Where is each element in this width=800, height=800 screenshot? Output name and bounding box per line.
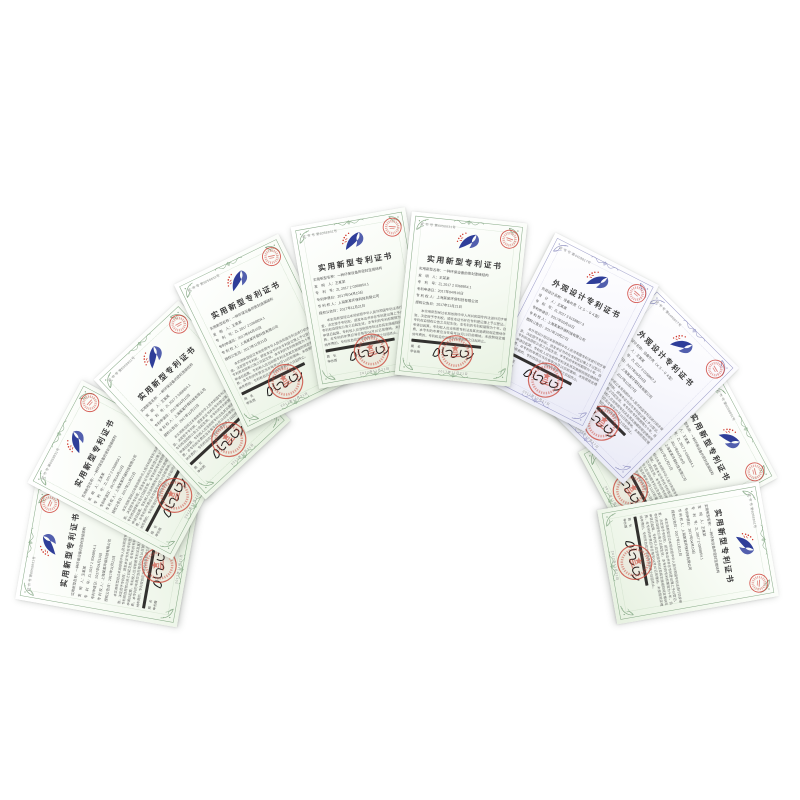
cnipa-logo-icon xyxy=(731,528,758,559)
examiner-stamp-icon xyxy=(259,244,284,269)
signer-block: 局 长 申长雨 xyxy=(410,344,421,354)
signer-name-label: 申长雨 xyxy=(410,349,420,355)
cnipa-logo-icon xyxy=(337,228,368,255)
examiner-stamp-icon xyxy=(381,216,403,238)
national-emblem-seal-icon xyxy=(436,333,475,372)
certificate-fan: 证 书 号 第6058831号 实用新型专利证书 实用新型名 xyxy=(0,0,800,800)
signer-block: 局 长 申长雨 xyxy=(147,599,158,610)
cnipa-logo-icon xyxy=(452,229,481,255)
certificate-card: 证 书 号 第6058831号 实用新型专利证书 实用新型名 xyxy=(395,211,528,386)
signer-block: 局 长 申长雨 xyxy=(622,517,633,528)
cnipa-logo-icon xyxy=(36,531,63,562)
examiner-stamp-icon xyxy=(748,572,770,594)
signer-block: 局 长 申长雨 xyxy=(326,353,337,364)
certificate-paper: 证 书 号 第6058831号 实用新型专利证书 实用新型名 xyxy=(395,211,528,386)
